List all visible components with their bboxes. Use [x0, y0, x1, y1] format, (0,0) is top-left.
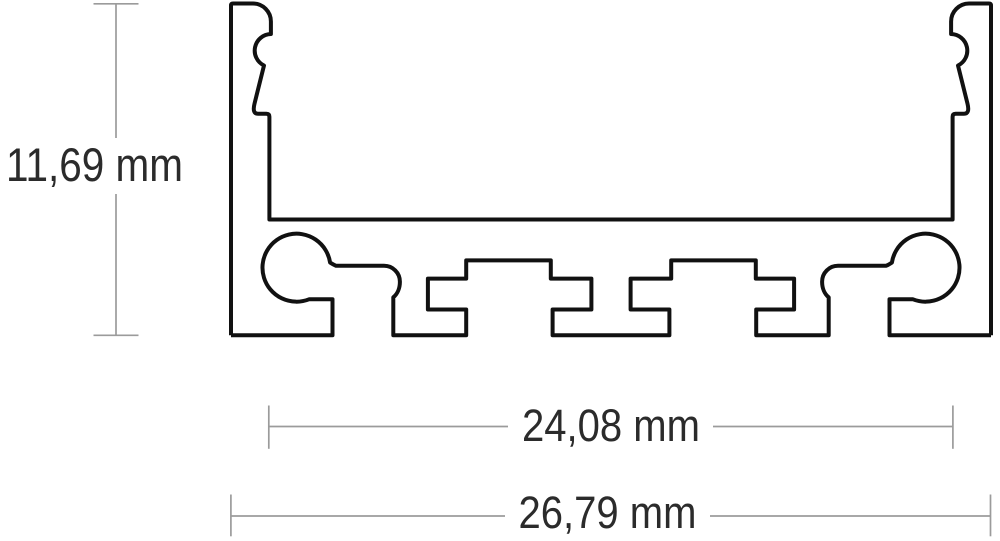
svg-text:24,08 mm: 24,08 mm — [522, 400, 700, 451]
svg-text:11,69 mm: 11,69 mm — [6, 138, 183, 191]
svg-text:26,79 mm: 26,79 mm — [519, 487, 697, 538]
